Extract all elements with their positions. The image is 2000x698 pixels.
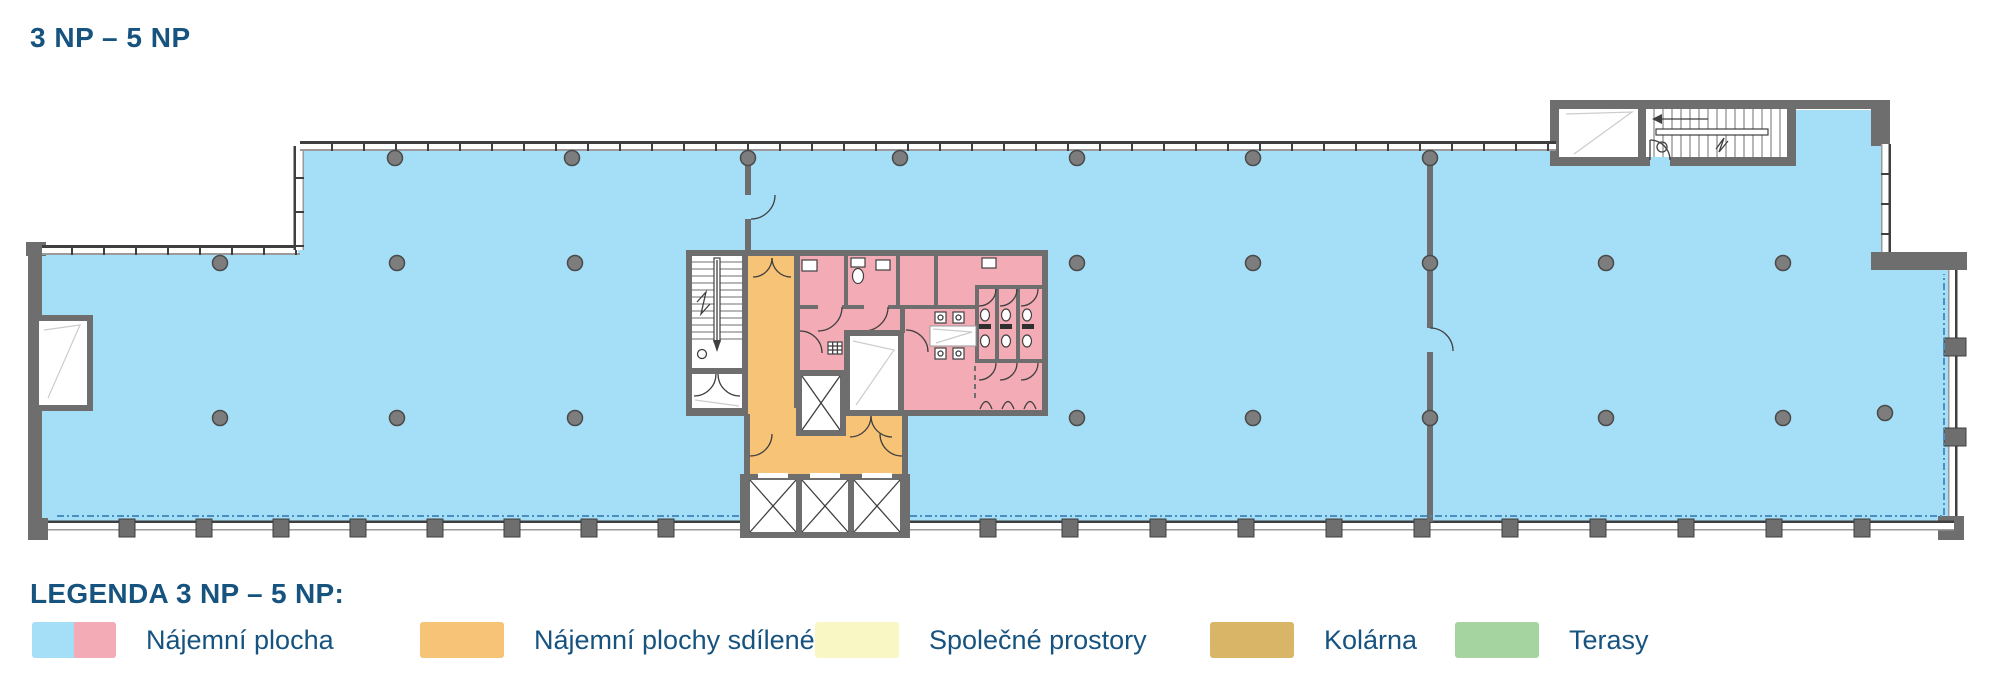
legend-swatch — [32, 622, 116, 658]
legend-swatch — [1455, 622, 1539, 658]
toilet — [981, 335, 990, 347]
toilet — [1023, 309, 1032, 321]
swatch-color-yellow — [815, 622, 899, 658]
legend-label: Společné prostory — [929, 625, 1147, 656]
basin — [935, 312, 946, 323]
right-mid-wall — [1871, 252, 1967, 270]
basin — [953, 348, 964, 359]
legend-label: Nájemní plochy sdílené — [534, 625, 815, 656]
basin — [935, 348, 946, 359]
legend-label: Nájemní plocha — [146, 625, 334, 656]
legend-item-kolarna: Kolárna — [1210, 622, 1417, 658]
toilet — [981, 309, 990, 321]
swatch-color-green — [1455, 622, 1539, 658]
toilet — [1002, 335, 1011, 347]
sink — [982, 258, 996, 268]
sink — [802, 260, 817, 271]
legend-item-najemni-plocha: Nájemní plocha — [32, 622, 334, 658]
core-shaft-room — [844, 330, 904, 416]
sink — [876, 260, 890, 270]
toilet — [1023, 335, 1032, 347]
swatch-color-pink — [74, 622, 116, 658]
legend-swatch — [815, 622, 899, 658]
swatch-color-blue — [32, 622, 74, 658]
legend-item-spolecne-prostory: Společné prostory — [815, 622, 1147, 658]
toilet — [853, 269, 864, 284]
legend-swatch — [1210, 622, 1294, 658]
legend-item-najemni-plochy-sdilene: Nájemní plochy sdílené — [420, 622, 815, 658]
legend-heading: LEGENDA 3 NP – 5 NP: — [30, 578, 344, 610]
legend-swatch — [420, 622, 504, 658]
swatch-color-tan — [1210, 622, 1294, 658]
legend-item-terasy: Terasy — [1455, 622, 1649, 658]
service-lift — [796, 370, 846, 436]
page: 3 NP – 5 NP — [0, 0, 2000, 698]
legend-label: Terasy — [1569, 625, 1649, 656]
tower-door-opening — [1650, 157, 1670, 166]
toilet — [1002, 309, 1011, 321]
basin — [953, 312, 964, 323]
elevators — [750, 473, 900, 532]
core-stairwell — [692, 256, 742, 408]
swatch-color-orange — [420, 622, 504, 658]
floor-drain — [828, 342, 842, 354]
left-shaft-niche — [36, 318, 90, 408]
legend-label: Kolárna — [1324, 625, 1417, 656]
